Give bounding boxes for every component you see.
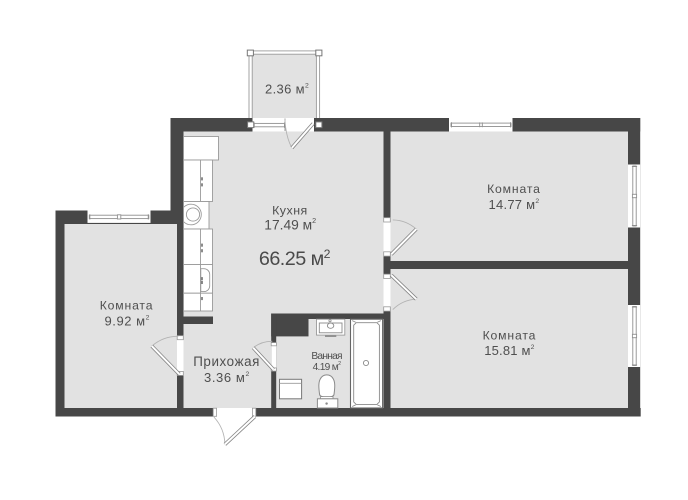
svg-text:3.36 м2: 3.36 м2 [204, 370, 249, 385]
svg-text:Кухня: Кухня [272, 204, 308, 218]
svg-text:66.25 м2: 66.25 м2 [259, 247, 331, 270]
svg-text:Комната: Комната [100, 299, 154, 313]
svg-text:Прихожая: Прихожая [193, 354, 260, 369]
svg-text:9.92 м2: 9.92 м2 [105, 314, 150, 329]
svg-text:Комната: Комната [487, 182, 541, 196]
svg-text:4.19 м2: 4.19 м2 [313, 361, 341, 373]
svg-text:14.77 м2: 14.77 м2 [489, 197, 540, 212]
svg-text:Комната: Комната [483, 328, 537, 342]
svg-text:15.81 м2: 15.81 м2 [484, 343, 534, 358]
svg-text:2.36 м2: 2.36 м2 [265, 81, 309, 96]
svg-text:17.49 м2: 17.49 м2 [264, 216, 316, 232]
